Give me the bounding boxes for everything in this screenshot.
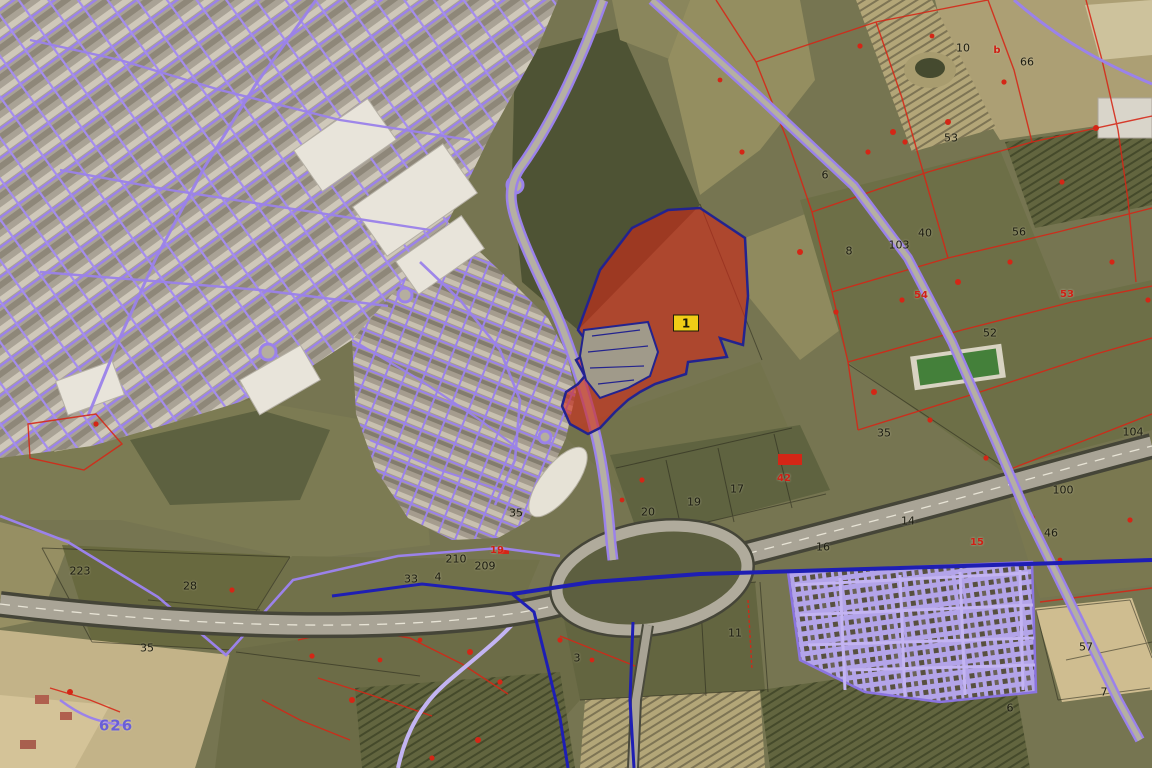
aerial-cadastral-map[interactable]: 2232835334210209193520191742161411368103… [0, 0, 1152, 768]
map-canvas [0, 0, 1152, 768]
selected-parcel-marker[interactable]: 1 [673, 315, 699, 332]
red-parcel-mark [778, 454, 802, 465]
